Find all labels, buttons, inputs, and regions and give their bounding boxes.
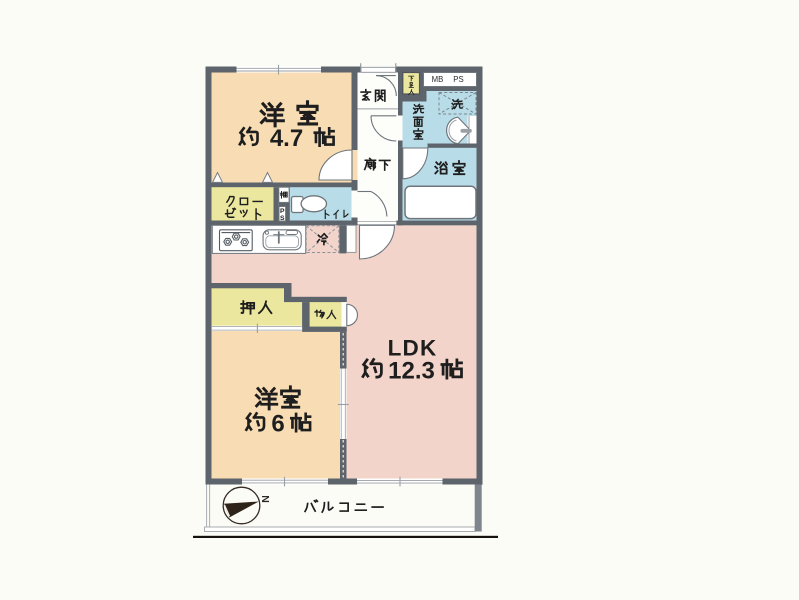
svg-text:P: P [280,208,285,215]
svg-text:N: N [259,495,271,503]
svg-text:S: S [280,215,285,222]
svg-text:12.3: 12.3 [388,358,435,385]
svg-text:MB: MB [432,75,444,84]
svg-text:4.7: 4.7 [270,125,303,152]
svg-text:PS: PS [453,75,463,84]
svg-text:6: 6 [271,411,284,438]
